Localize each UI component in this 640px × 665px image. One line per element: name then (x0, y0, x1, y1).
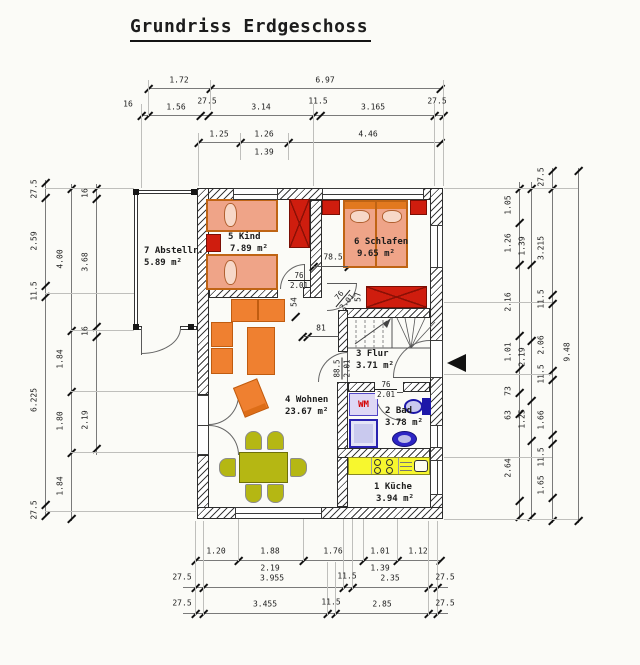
french-door-opening (197, 395, 209, 455)
kind-wardrobe (289, 199, 310, 248)
extension-line (444, 519, 578, 520)
room-label-kueche-area: 3.94 m² (376, 494, 414, 504)
dim-label: 2.01 (288, 281, 310, 290)
extension-line (335, 562, 336, 615)
lounge-chair (233, 378, 269, 417)
dim-label: 1.88 (260, 547, 279, 556)
window-schlafen-east (430, 225, 443, 268)
washing-machine: WM (349, 393, 378, 416)
dim-label: 9.48 (563, 342, 572, 361)
room-label-wohnen-name: 4 Wohnen (285, 395, 328, 405)
dining-table (239, 452, 288, 483)
dim-label: 54 (290, 297, 299, 307)
extension-line (240, 133, 241, 160)
annex-door-arc (141, 328, 181, 354)
dim-label: 16 (123, 100, 133, 109)
dim-label: 11.5 (537, 289, 546, 308)
wall-post (133, 189, 139, 195)
window-bad (430, 425, 443, 448)
dim-label: 2.19 (518, 347, 527, 366)
schlafen-nightstand-right (410, 200, 427, 215)
dim-label: 11.5 (537, 447, 546, 466)
dim-label: 3.68 (81, 252, 90, 271)
kitchen-counter (348, 457, 430, 475)
counter-divider (371, 458, 372, 474)
armchair-1 (211, 322, 233, 347)
extension-line (303, 519, 304, 561)
extension-line (288, 133, 289, 160)
extension-line (198, 133, 199, 186)
dim-label: 3.14 (251, 103, 270, 112)
dim-label: 27.5 (427, 97, 446, 106)
extension-line (148, 80, 149, 116)
dim-line (552, 168, 553, 523)
annex-wall-left (134, 190, 138, 330)
chair-backrest (244, 403, 267, 416)
dim-label: 2.01 (343, 358, 352, 380)
extension-line (313, 104, 314, 186)
dining-chair (245, 484, 262, 503)
extension-line (45, 511, 196, 512)
page-title: Grundriss Erdgeschoss (130, 16, 371, 42)
dim-label: 63 (504, 410, 513, 420)
dim-label: 57 (354, 292, 363, 302)
drainer-line (400, 470, 412, 471)
dining-chair (267, 484, 284, 503)
wall-flur-bad-right (403, 382, 430, 392)
extension-line (238, 519, 239, 561)
french-door-arc-upper (209, 395, 239, 425)
window-kueche (430, 460, 443, 495)
extension-line (397, 519, 398, 561)
dim-line (148, 88, 440, 89)
dim-label: 1.39 (518, 236, 527, 255)
dim-label: 73 (504, 386, 513, 396)
dim-label: 78.5 (323, 253, 342, 262)
stairs (345, 306, 443, 350)
dim-label: 1.25 (518, 409, 527, 428)
coffee-table (247, 327, 275, 375)
extension-line (45, 188, 134, 189)
extension-line (71, 452, 196, 453)
dim-label: 6.225 (30, 388, 39, 412)
dim-label: 81 (316, 324, 326, 333)
dim-label: 1.72 (169, 76, 188, 85)
dim-line (195, 560, 440, 561)
room-label-schlafen-name: 6 Schlafen (354, 237, 408, 247)
extension-line (71, 391, 196, 392)
dim-label: 16 (81, 326, 90, 336)
schlafen-wardrobe (366, 286, 427, 308)
dim-label: 1.12 (408, 547, 427, 556)
annex-door-leaf (141, 328, 142, 355)
dim-label: 27.5 (172, 573, 191, 582)
armchair-2 (211, 348, 233, 374)
window-schlafen-top (322, 188, 424, 200)
entrance-arrow-icon (447, 354, 466, 372)
dim-label: 1.05 (504, 195, 513, 214)
stove-burner-icon (386, 467, 393, 474)
dim-line (198, 142, 443, 143)
niche-dim-line (313, 266, 348, 267)
wall-post (191, 189, 197, 195)
dim-label: 11.5 (537, 364, 546, 383)
dim-line (71, 184, 72, 521)
dim-line (183, 587, 448, 588)
wall-kind-schlafen (310, 200, 322, 298)
extension-line (434, 104, 435, 186)
pillow (382, 210, 402, 223)
stove-burner-icon (386, 459, 393, 466)
dim-label: 1.65 (537, 475, 546, 494)
dim-line (531, 182, 532, 520)
washing-machine-label: WM (358, 400, 369, 410)
dim-label: 1.20 (206, 547, 225, 556)
kind-nightstand (206, 234, 221, 252)
toilet-tank (422, 398, 431, 415)
dim-label: 1.01 (504, 342, 513, 361)
dim-label: 27.5 (537, 167, 546, 186)
dim-label: 3.215 (537, 236, 546, 260)
dim-label: 2.19 (81, 410, 90, 429)
stove-burner-icon (374, 467, 381, 474)
dim-label: 1.25 (209, 130, 228, 139)
sofa-two-seat (231, 299, 285, 322)
room-label-bad-name: 2 Bad (385, 406, 412, 416)
pillow (224, 260, 237, 285)
dim-label: 76 (375, 380, 397, 390)
entrance-door-leaf (393, 377, 430, 378)
dining-chair (245, 431, 262, 450)
pillow (224, 203, 237, 227)
dim-label: 1.26 (504, 233, 513, 252)
wall-flur-bad-left (348, 382, 375, 392)
dim-line (141, 115, 443, 116)
dim-label: 1.84 (56, 349, 65, 368)
room-label-flur-area: 3.71 m² (356, 361, 394, 371)
dining-chair (219, 458, 236, 477)
dim-label: 3.955 (260, 574, 284, 583)
dim-line (183, 613, 448, 614)
annex-wall-top (134, 190, 197, 194)
schlafen-nightstand-left (322, 200, 340, 215)
dim-label: 27.5 (197, 97, 216, 106)
dim-label: 11.5 (30, 281, 39, 300)
window-wohnen-south (235, 507, 322, 519)
extension-line (363, 519, 364, 561)
wall-post (133, 324, 139, 330)
room-label-kind-name: 5 Kind (228, 232, 261, 242)
dim-label: 1.66 (537, 410, 546, 429)
dim-label: 2.64 (504, 458, 513, 477)
dim-label: 1.84 (56, 476, 65, 495)
dim-line (578, 168, 579, 523)
extension-line (45, 293, 134, 294)
dim-label: 2.19 (260, 564, 279, 573)
dim-label: 6.97 (315, 76, 334, 85)
dim-tick (291, 312, 300, 321)
dim-label: 4.46 (358, 130, 377, 139)
dim-label: 1.80 (56, 411, 65, 430)
floor-plan-canvas: Grundriss Erdgeschoss 1.72 6.97 16 1.56 … (0, 0, 640, 665)
dim-label: 1.39 (370, 564, 389, 573)
dim-label: 2.85 (372, 600, 391, 609)
dim-line (45, 180, 46, 516)
dim-label: 27.5 (30, 179, 39, 198)
window-kind (233, 188, 278, 200)
room-label-bad-area: 3.78 m² (385, 418, 423, 428)
dim-label: 1.39 (254, 148, 273, 157)
dim-label: 11.5 (337, 572, 356, 581)
extension-line (141, 104, 142, 188)
dim-label: 11.5 (321, 598, 340, 607)
kind-door-size: 76 2.01 (288, 271, 310, 290)
dim-label: 27.5 (172, 599, 191, 608)
kind-bed-1 (206, 199, 278, 232)
room-label-kueche-name: 1 Küche (374, 482, 412, 492)
french-door-arc-lower (209, 425, 239, 455)
drainer-line (400, 462, 412, 463)
room-label-abstell-name: 7 Abstellr. (144, 246, 204, 256)
extension-line (327, 562, 328, 615)
dining-chair (267, 431, 284, 450)
dim-label: 1.01 (370, 547, 389, 556)
kind-bed-2 (206, 254, 278, 290)
entrance-door-opening (430, 340, 443, 378)
dim-label: 3.165 (361, 103, 385, 112)
shower (349, 419, 378, 448)
bath-sink (392, 431, 417, 447)
dim-label: 1.56 (166, 103, 185, 112)
dim-label: 2.06 (537, 335, 546, 354)
dim-label: 2.59 (30, 231, 39, 250)
room-label-abstell-area: 5.89 m² (144, 258, 182, 268)
bath-sink-basin (398, 435, 411, 443)
extension-line (444, 188, 578, 189)
pillow (350, 210, 370, 223)
dim-label: 3.455 (253, 600, 277, 609)
opening-dim-line (303, 336, 339, 337)
dim-label: 27.5 (435, 599, 454, 608)
dim-label: 2.01 (375, 390, 397, 399)
wall-wohnen-bad (337, 382, 348, 507)
sofa-cushion-divider (257, 300, 259, 320)
room-label-wohnen-area: 23.67 m² (285, 407, 328, 417)
dim-label: 76 (288, 271, 310, 281)
counter-divider (398, 458, 399, 474)
dining-chair (290, 458, 307, 477)
room-label-schlafen-area: 9.65 m² (357, 249, 395, 259)
stove-burner-icon (374, 459, 381, 466)
dim-line (96, 184, 97, 455)
dim-label: 11.5 (308, 97, 327, 106)
dim-label: 16 (81, 188, 90, 198)
flur-door-size: 88.5 2.01 (333, 358, 352, 380)
dim-label: 4.00 (56, 249, 65, 268)
room-label-kind-area: 7.89 m² (230, 244, 268, 254)
bad-door-size: 76 2.01 (375, 380, 397, 399)
kitchen-sink-basin (414, 460, 428, 472)
dim-label: 27.5 (435, 573, 454, 582)
wall-post (188, 324, 194, 330)
dim-label: 2.35 (380, 574, 399, 583)
extension-line (203, 521, 204, 615)
dim-label: 1.76 (323, 547, 342, 556)
dim-label: 27.5 (30, 500, 39, 519)
dim-label: 1.26 (254, 130, 273, 139)
extension-line (428, 521, 429, 615)
dim-label: 88.5 (333, 358, 343, 380)
drainer-line (400, 466, 412, 467)
room-label-flur-name: 3 Flur (356, 349, 389, 359)
extension-line (195, 521, 196, 615)
extension-line (210, 80, 211, 110)
dim-label: 2.16 (504, 292, 513, 311)
